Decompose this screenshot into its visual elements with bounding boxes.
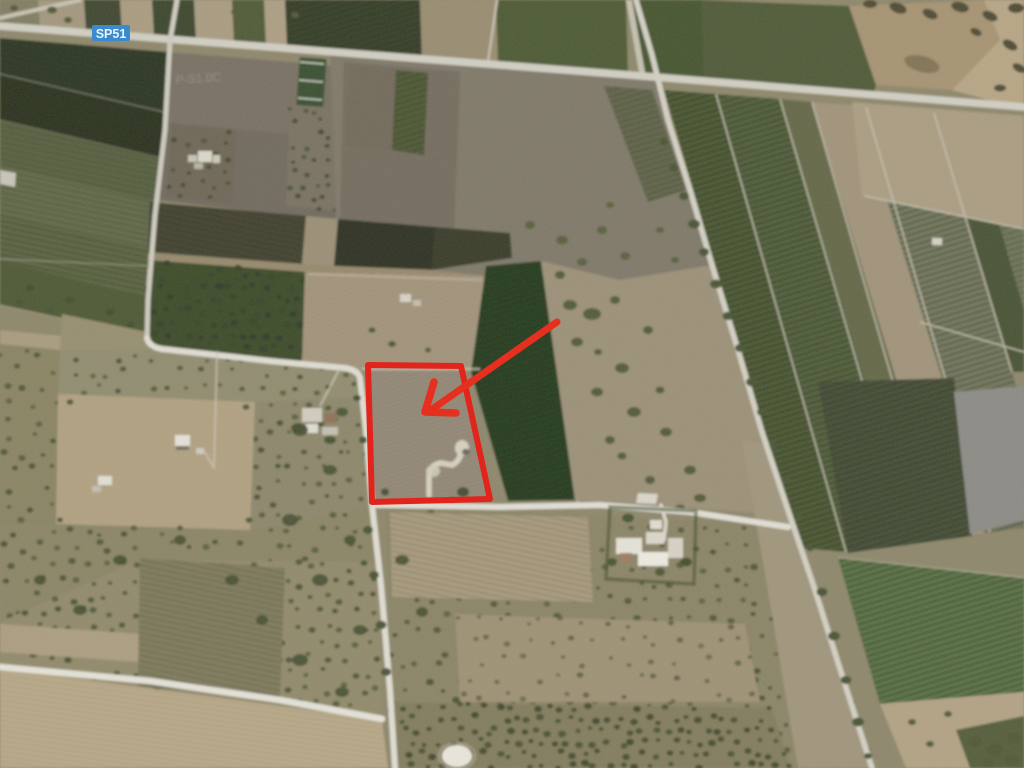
- svg-text:SP51: SP51: [96, 27, 127, 41]
